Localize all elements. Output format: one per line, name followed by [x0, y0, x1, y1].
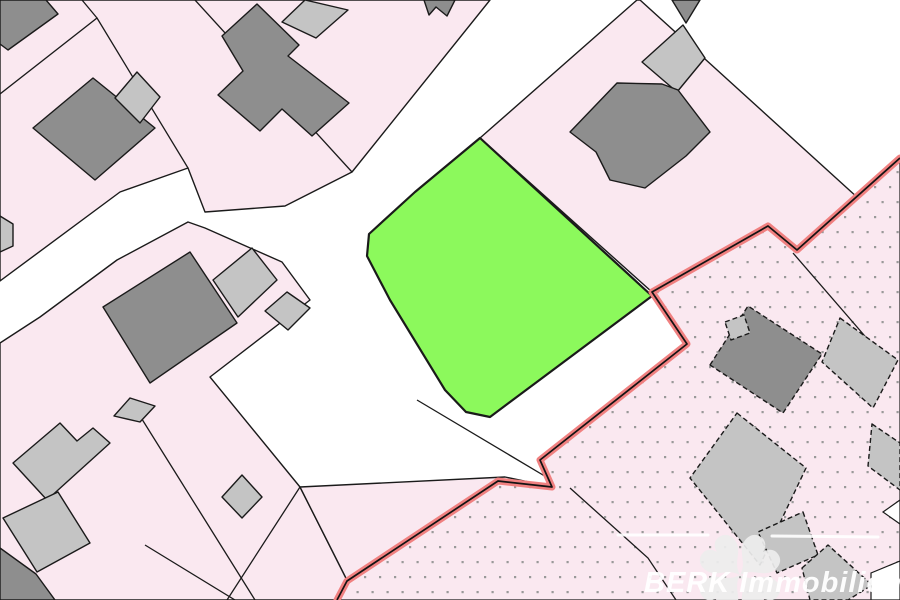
cadastral-map[interactable]: BERK Immobilien: [0, 0, 900, 600]
watermark-line-2: [772, 536, 878, 537]
map-viewport[interactable]: BERK Immobilien: [0, 0, 900, 600]
watermark-text: BERK Immobilien: [644, 567, 900, 599]
